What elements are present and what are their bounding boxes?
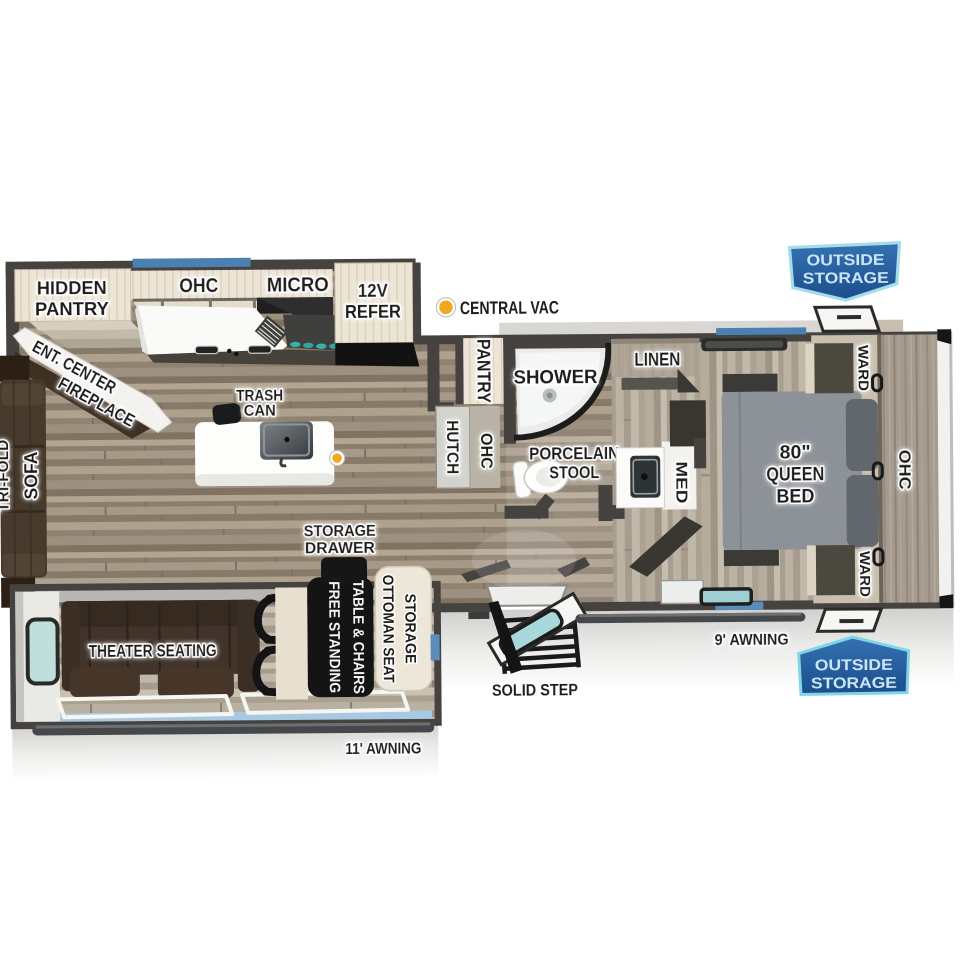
svg-text:OHC: OHC <box>179 275 218 297</box>
svg-text:STORAGE: STORAGE <box>811 675 897 693</box>
svg-text:OUTSIDE: OUTSIDE <box>815 657 893 675</box>
svg-text:OHC: OHC <box>895 450 914 490</box>
svg-text:OUTSIDE: OUTSIDE <box>807 252 885 270</box>
svg-text:STOOL: STOOL <box>549 462 599 482</box>
svg-text:CENTRAL VAC: CENTRAL VAC <box>460 297 559 318</box>
svg-text:PANTRY: PANTRY <box>473 339 494 403</box>
svg-text:SHOWER: SHOWER <box>513 367 597 389</box>
svg-text:STORAGE: STORAGE <box>304 523 376 541</box>
svg-text:HUTCH: HUTCH <box>443 420 461 474</box>
svg-text:MICRO: MICRO <box>267 274 329 296</box>
svg-text:80": 80" <box>780 442 811 463</box>
svg-text:11' AWNING: 11' AWNING <box>345 740 421 758</box>
svg-text:OTTOMAN SEAT: OTTOMAN SEAT <box>379 575 397 683</box>
svg-text:STORAGE: STORAGE <box>401 593 419 663</box>
svg-text:CAN: CAN <box>244 403 276 420</box>
svg-text:FREE STANDING: FREE STANDING <box>325 581 343 693</box>
svg-text:BED: BED <box>776 486 814 507</box>
svg-text:WARD: WARD <box>854 345 870 391</box>
svg-text:QUEEN: QUEEN <box>766 464 824 485</box>
svg-text:DRAWER: DRAWER <box>305 540 376 558</box>
svg-text:REFER: REFER <box>345 302 401 322</box>
svg-text:HIDDEN: HIDDEN <box>37 278 107 299</box>
svg-text:STORAGE: STORAGE <box>803 270 889 288</box>
svg-text:THEATER SEATING: THEATER SEATING <box>89 640 217 661</box>
svg-text:LINEN: LINEN <box>634 349 680 369</box>
svg-text:SOLID STEP: SOLID STEP <box>492 680 578 700</box>
svg-text:12V: 12V <box>358 281 388 301</box>
svg-text:TRI-FOLD: TRI-FOLD <box>0 440 13 512</box>
svg-text:SOFA: SOFA <box>21 451 41 499</box>
svg-text:PANTRY: PANTRY <box>35 299 109 320</box>
svg-text:WARD: WARD <box>856 551 872 597</box>
svg-text:OHC: OHC <box>477 433 495 469</box>
svg-text:9' AWNING: 9' AWNING <box>715 632 789 650</box>
svg-text:PORCELAIN: PORCELAIN <box>529 443 619 464</box>
svg-text:TABLE & CHAIRS: TABLE & CHAIRS <box>349 580 367 694</box>
svg-text:MED: MED <box>672 461 689 503</box>
